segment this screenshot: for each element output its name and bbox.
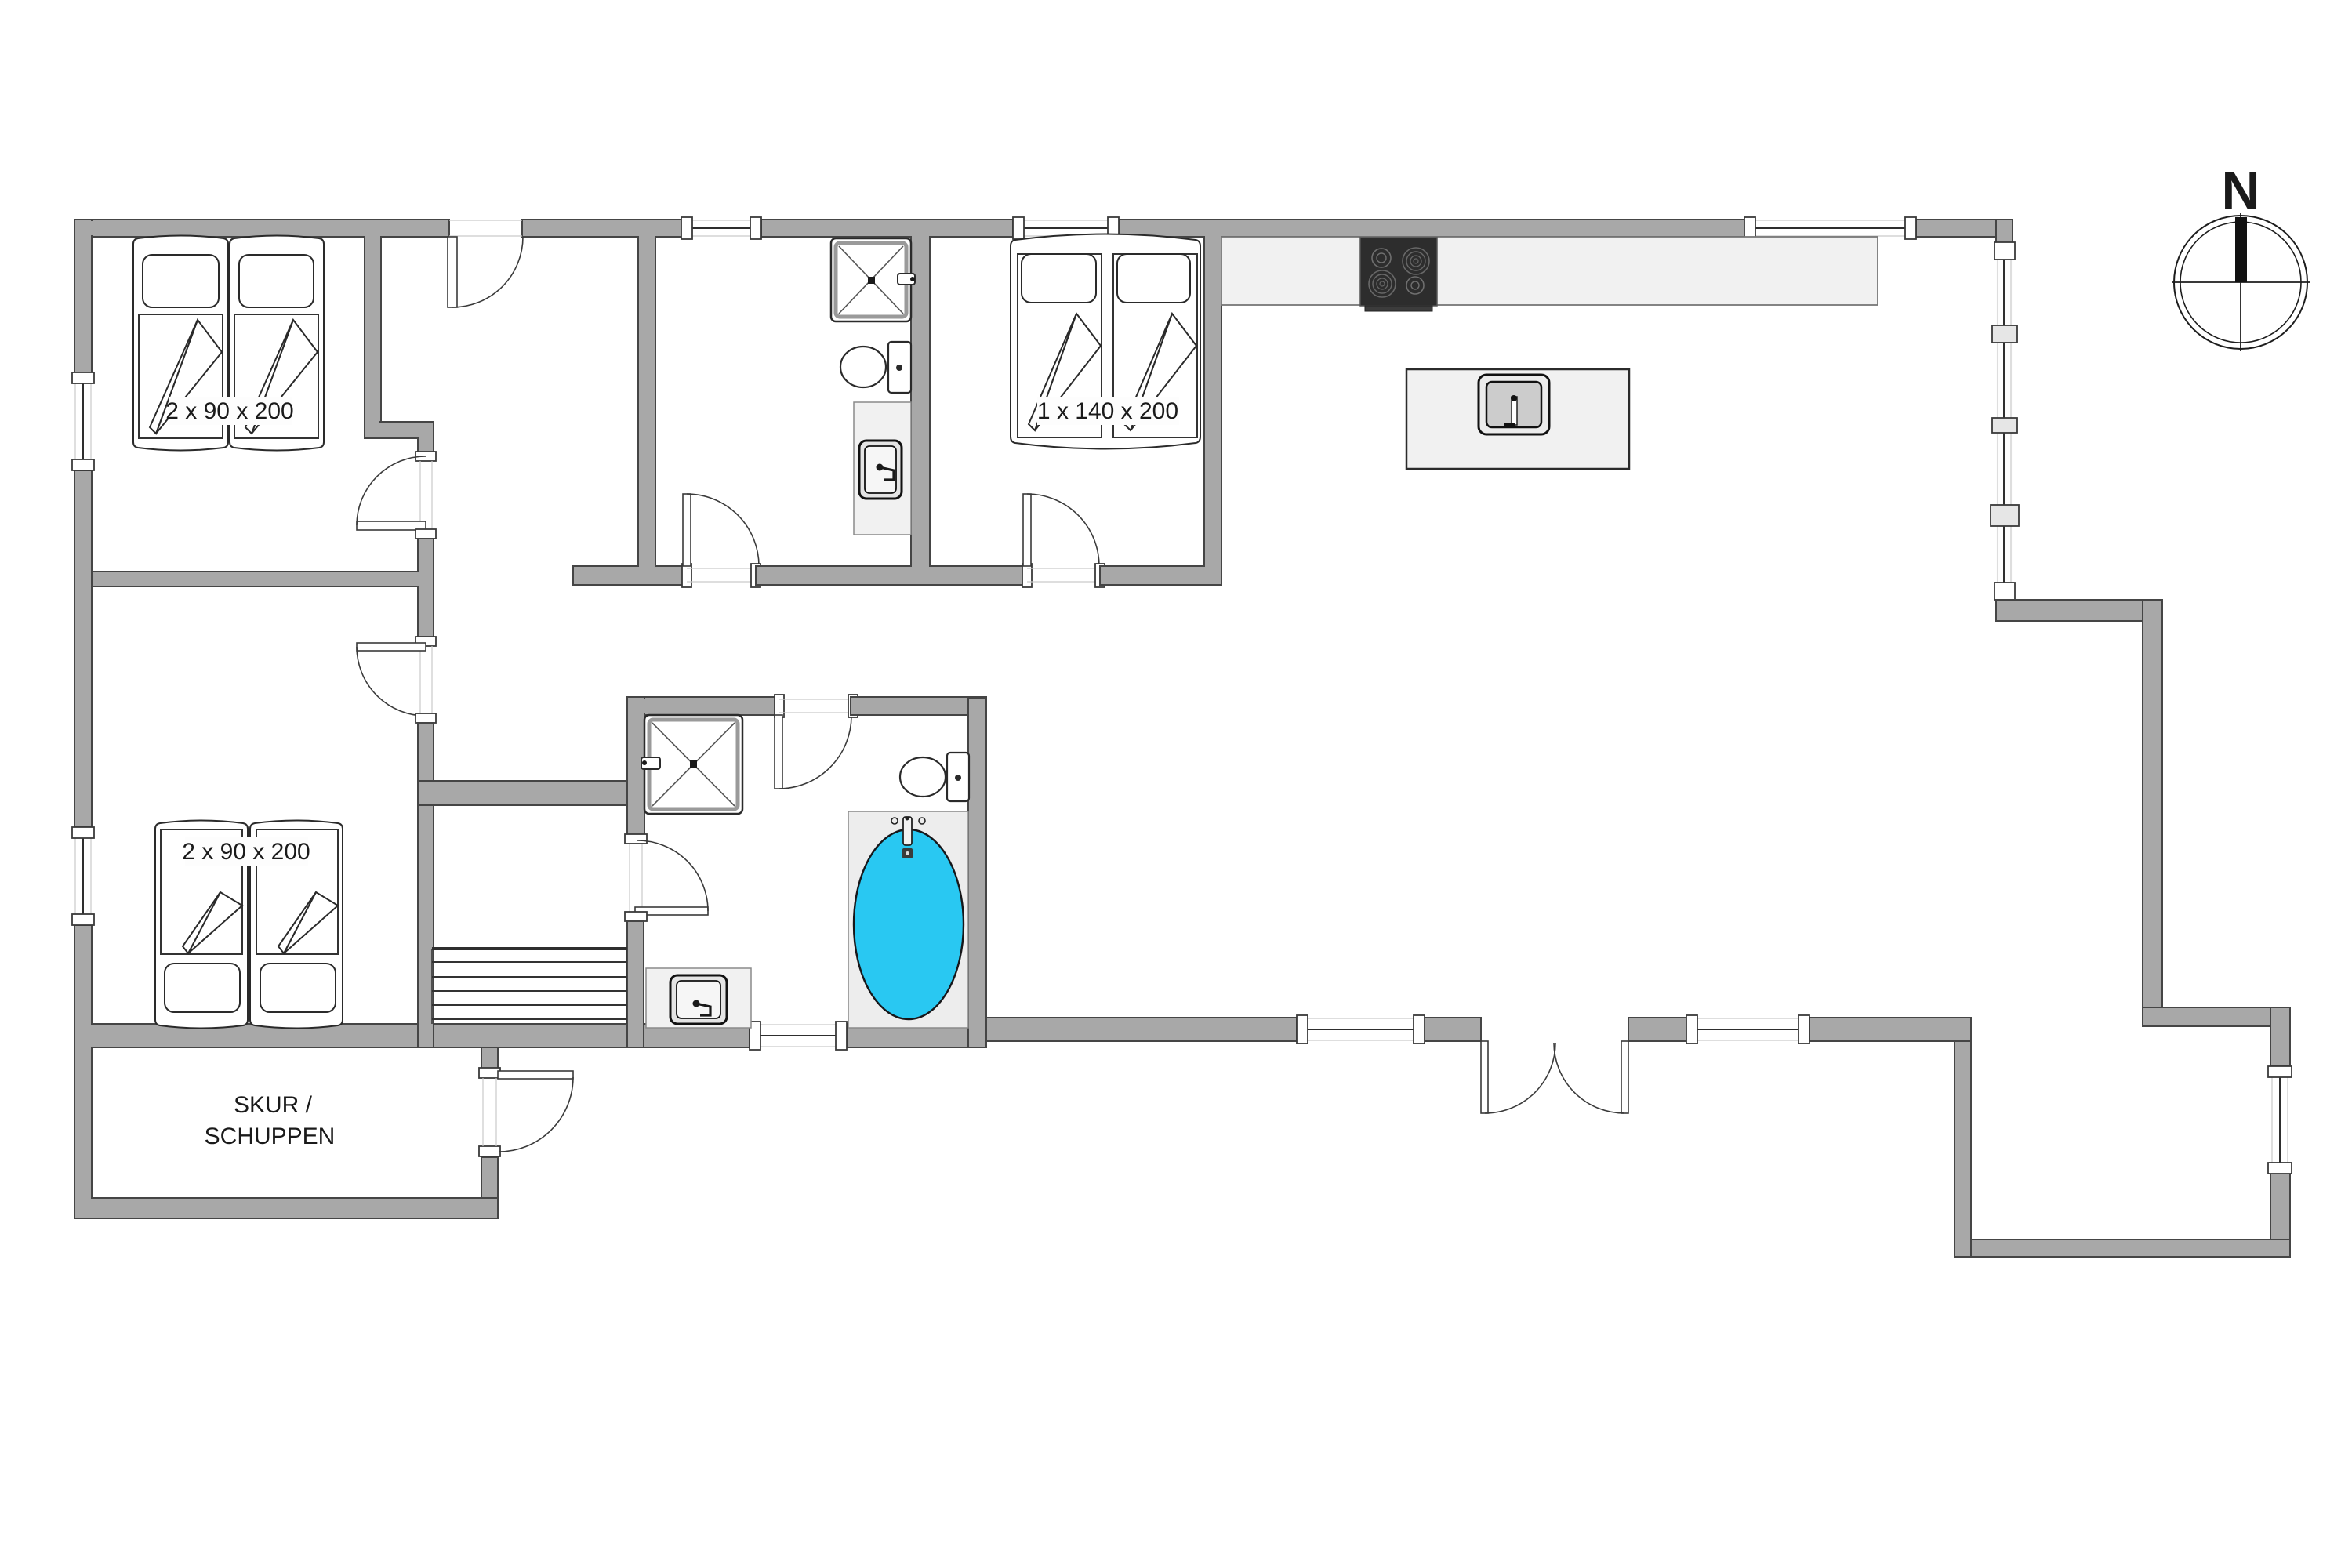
svg-text:N: N — [2221, 161, 2259, 220]
svg-text:2 x 90 x 200: 2 x 90 x 200 — [182, 839, 310, 865]
svg-text:SKUR /: SKUR / — [234, 1092, 313, 1118]
svg-text:1 x 140 x 200: 1 x 140 x 200 — [1037, 398, 1178, 424]
svg-text:2 x 90 x 200: 2 x 90 x 200 — [165, 398, 293, 424]
svg-text:SCHUPPEN: SCHUPPEN — [205, 1123, 336, 1149]
